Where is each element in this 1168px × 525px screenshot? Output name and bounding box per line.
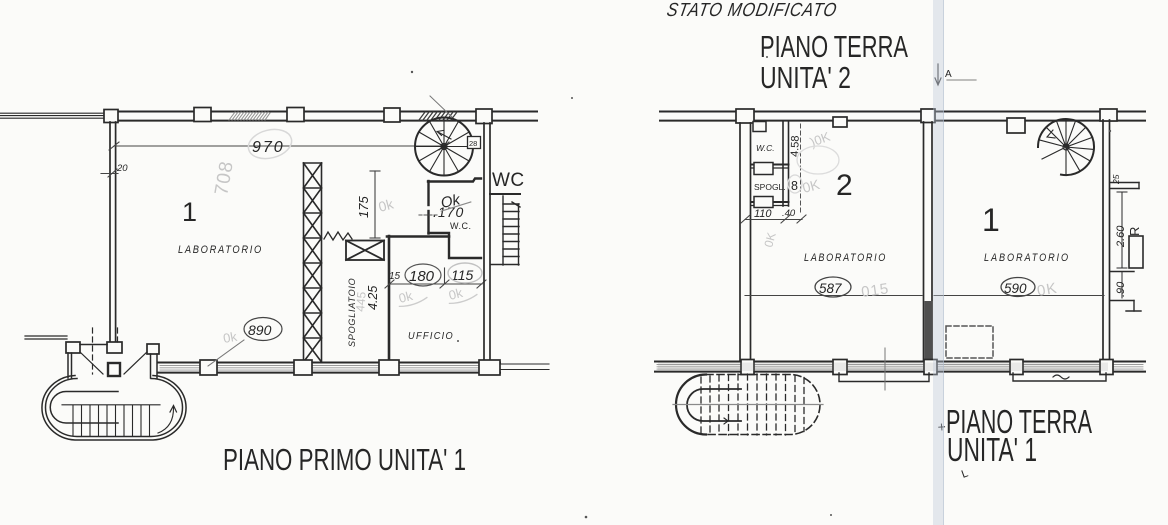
svg-text:PIANO PRIMO UNITA' 1: PIANO PRIMO UNITA' 1 — [223, 442, 466, 477]
svg-text:587: 587 — [819, 281, 842, 296]
svg-text:WC: WC — [492, 170, 525, 191]
svg-text:28: 28 — [469, 139, 477, 148]
svg-text:.40: .40 — [782, 208, 796, 219]
svg-text:0K: 0K — [1036, 280, 1059, 300]
svg-text:2: 2 — [836, 169, 853, 202]
svg-text:W.C.: W.C. — [450, 221, 472, 231]
svg-text:20: 20 — [116, 163, 128, 174]
svg-text:UFFICIO: UFFICIO — [408, 330, 454, 342]
svg-text:890: 890 — [248, 322, 272, 338]
svg-text:25: 25 — [1111, 174, 1121, 185]
svg-text:2.60: 2.60 — [1115, 225, 1127, 248]
svg-text:LABORATORIO: LABORATORIO — [804, 252, 887, 264]
svg-text:R: R — [1127, 227, 1142, 236]
svg-text:STATO MODIFICATO: STATO MODIFICATO — [665, 0, 839, 21]
svg-text:8: 8 — [791, 179, 798, 193]
svg-text:PIANO TERRA: PIANO TERRA — [760, 29, 908, 64]
svg-text:15: 15 — [389, 271, 401, 282]
svg-text:180: 180 — [409, 268, 435, 285]
svg-text:175: 175 — [356, 196, 371, 218]
svg-text:UNITA' 2: UNITA' 2 — [760, 60, 851, 95]
svg-text:110: 110 — [754, 208, 772, 220]
svg-text:SPOGL.: SPOGL. — [754, 182, 786, 192]
svg-text:1: 1 — [982, 202, 1000, 238]
svg-text:W.C.: W.C. — [756, 143, 775, 153]
svg-text:.90: .90 — [1115, 281, 1127, 297]
svg-text:A: A — [945, 69, 952, 80]
svg-text:LABORATORIO: LABORATORIO — [984, 252, 1070, 264]
svg-text:SPOGLIATOIO: SPOGLIATOIO — [347, 278, 357, 347]
svg-text:970: 970 — [252, 139, 285, 156]
svg-text:445: 445 — [353, 291, 369, 312]
svg-text:UNITA' 1: UNITA' 1 — [947, 431, 1037, 468]
svg-text:LABORATORIO: LABORATORIO — [178, 244, 263, 256]
svg-text:1: 1 — [182, 197, 197, 227]
